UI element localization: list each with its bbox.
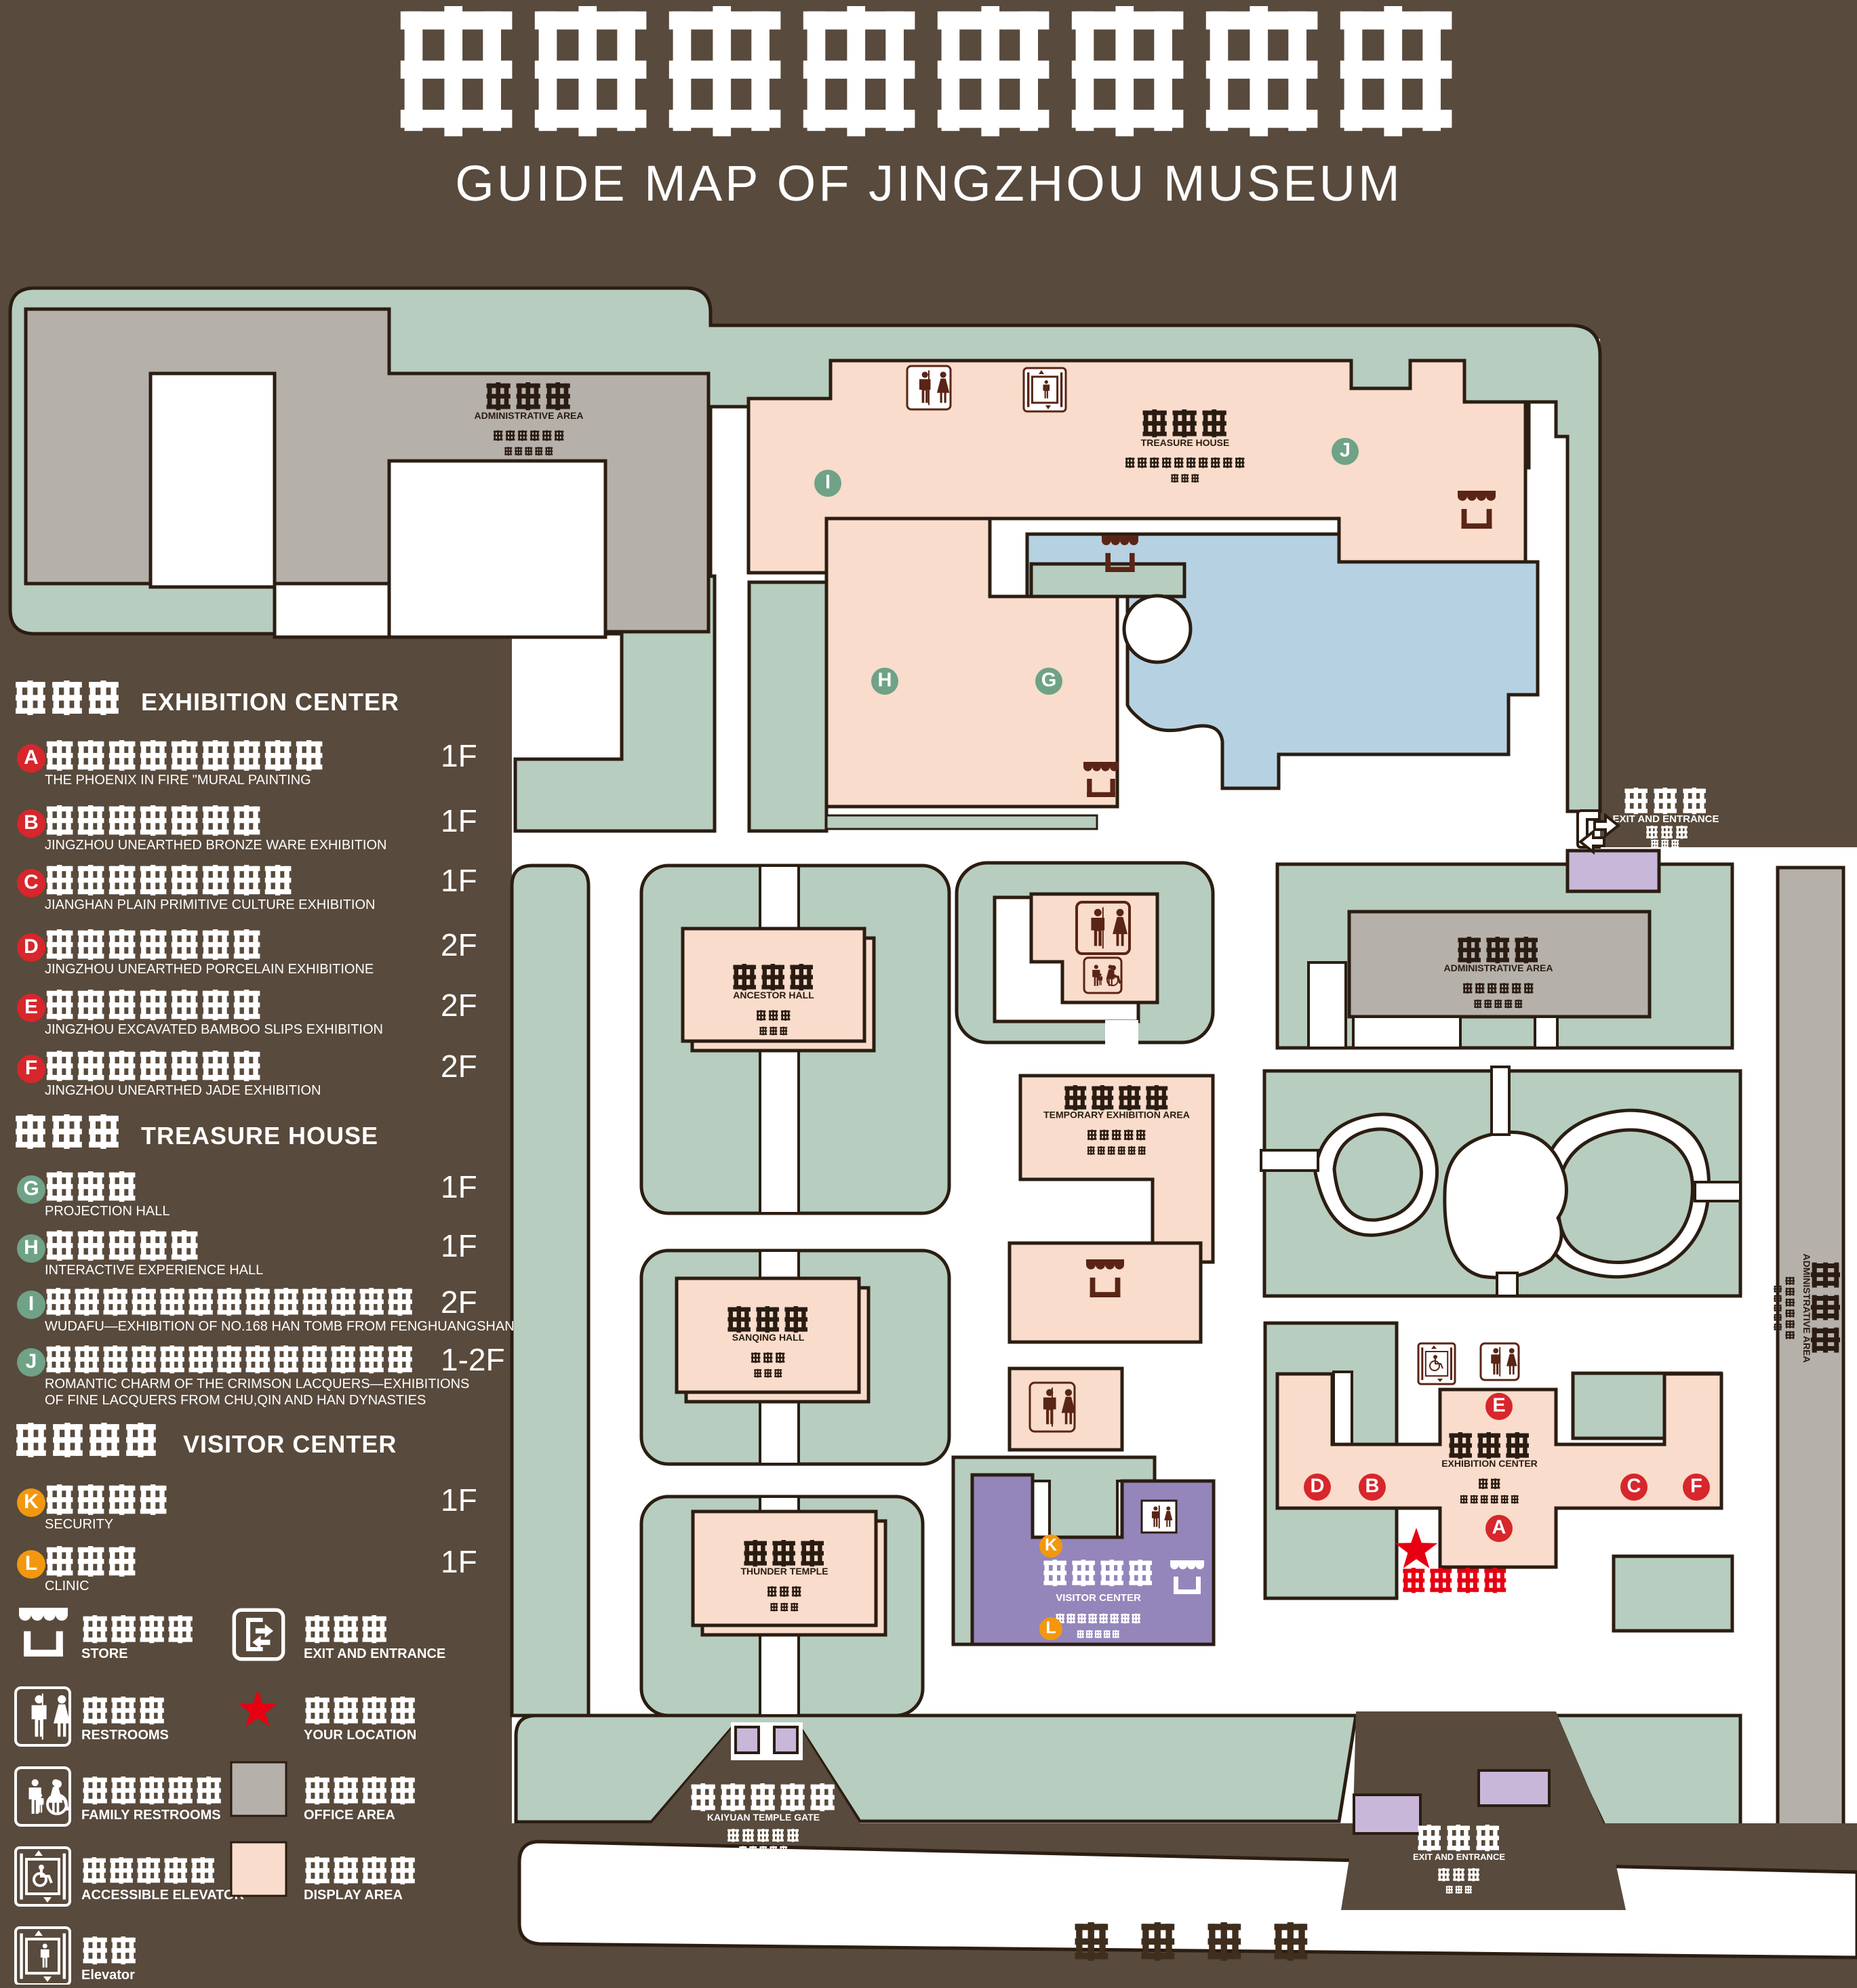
svg-text:JIANGHAN PLAIN PRIMITIVE CULTU: JIANGHAN PLAIN PRIMITIVE CULTURE EXHIBIT… <box>45 897 375 912</box>
svg-text:OFFICE AREA: OFFICE AREA <box>304 1808 395 1823</box>
svg-text:H: H <box>24 1236 39 1259</box>
svg-text:C: C <box>1627 1476 1641 1497</box>
svg-text:ADMINISTRATIVE AREA: ADMINISTRATIVE AREA <box>475 410 584 421</box>
svg-text:SANQING HALL: SANQING HALL <box>732 1332 805 1343</box>
svg-text:B: B <box>24 811 39 834</box>
svg-text:OF FINE LACQUERS FROM CHU,QIN: OF FINE LACQUERS FROM CHU,QIN AND HAN DY… <box>45 1393 426 1408</box>
svg-text:2F: 2F <box>441 1049 477 1084</box>
svg-text:J: J <box>1340 440 1351 462</box>
svg-text:1F: 1F <box>441 1169 477 1204</box>
svg-text:FAMILY RESTROOMS: FAMILY RESTROOMS <box>81 1808 221 1823</box>
svg-text:G: G <box>23 1177 39 1200</box>
svg-text:I: I <box>28 1293 34 1315</box>
svg-text:Elevator: Elevator <box>81 1968 135 1983</box>
svg-text:1F: 1F <box>441 1544 477 1579</box>
svg-text:EXIT AND ENTRANCE: EXIT AND ENTRANCE <box>1613 813 1719 825</box>
svg-text:1-2F: 1-2F <box>441 1342 505 1377</box>
svg-text:B: B <box>1365 1476 1380 1497</box>
svg-text:EXHIBITION CENTER: EXHIBITION CENTER <box>1441 1458 1538 1469</box>
svg-text:VISITOR CENTER: VISITOR CENTER <box>1056 1592 1141 1604</box>
svg-text:F: F <box>1690 1476 1702 1497</box>
svg-text:K: K <box>24 1490 39 1513</box>
svg-text:D: D <box>24 935 39 958</box>
svg-text:THUNDER TEMPLE: THUNDER TEMPLE <box>740 1566 828 1577</box>
svg-text:J: J <box>26 1350 37 1373</box>
svg-text:PROJECTION HALL: PROJECTION HALL <box>45 1204 169 1219</box>
svg-text:1F: 1F <box>441 803 477 838</box>
svg-text:ANCESTOR HALL: ANCESTOR HALL <box>733 990 814 1000</box>
svg-text:TREASURE HOUSE: TREASURE HOUSE <box>141 1122 378 1150</box>
svg-text:STORE: STORE <box>81 1646 128 1661</box>
svg-text:TEMPORARY EXHIBITION AREA: TEMPORARY EXHIBITION AREA <box>1043 1110 1190 1120</box>
svg-text:TREASURE HOUSE: TREASURE HOUSE <box>1141 437 1230 448</box>
svg-text:1F: 1F <box>441 1482 477 1518</box>
svg-text:EXIT AND ENTRANCE: EXIT AND ENTRANCE <box>1413 1852 1505 1862</box>
svg-text:A: A <box>24 746 39 769</box>
svg-text:JINGZHOU UNEARTHED BRONZE WARE: JINGZHOU UNEARTHED BRONZE WARE EXHIBITIO… <box>45 838 386 853</box>
svg-text:WUDAFU—EXHIBITION OF NO.168 HA: WUDAFU—EXHIBITION OF NO.168 HAN TOMB FRO… <box>45 1319 515 1334</box>
svg-text:EXHIBITION CENTER: EXHIBITION CENTER <box>141 688 399 716</box>
svg-text:D: D <box>1311 1476 1325 1497</box>
svg-text:VISITOR CENTER: VISITOR CENTER <box>183 1430 397 1458</box>
svg-text:THE PHOENIX IN FIRE "MURAL PAI: THE PHOENIX IN FIRE "MURAL PAINTING <box>45 773 311 788</box>
svg-text:JINGZHOU UNEARTHED PORCELAIN E: JINGZHOU UNEARTHED PORCELAIN EXHIBITIONE <box>45 962 374 977</box>
svg-text:1F: 1F <box>441 738 477 773</box>
svg-text:ROMANTIC CHARM OF THE CRIMSON: ROMANTIC CHARM OF THE CRIMSON LACQUERS—E… <box>45 1377 469 1392</box>
svg-text:ACCESSIBLE ELEVATOR: ACCESSIBLE ELEVATOR <box>81 1888 245 1903</box>
svg-text:A: A <box>1492 1517 1506 1539</box>
svg-text:H: H <box>878 670 892 691</box>
svg-text:INTERACTIVE EXPERIENCE HALL: INTERACTIVE EXPERIENCE HALL <box>45 1263 263 1278</box>
svg-text:F: F <box>25 1057 37 1079</box>
svg-text:L: L <box>25 1552 37 1575</box>
svg-text:2F: 2F <box>441 927 477 962</box>
svg-text:K: K <box>1045 1535 1057 1554</box>
svg-text:1F: 1F <box>441 863 477 898</box>
svg-text:E: E <box>1492 1395 1505 1417</box>
svg-text:ADMINISTRATIVE AREA: ADMINISTRATIVE AREA <box>1444 962 1553 973</box>
svg-text:2F: 2F <box>441 1284 477 1320</box>
svg-text:I: I <box>825 472 831 493</box>
svg-text:GUIDE MAP OF JINGZHOU MUSEUM: GUIDE MAP OF JINGZHOU MUSEUM <box>455 155 1402 211</box>
svg-text:EXIT AND ENTRANCE: EXIT AND ENTRANCE <box>304 1646 445 1661</box>
svg-text:C: C <box>24 871 39 893</box>
svg-text:L: L <box>1045 1618 1056 1637</box>
svg-text:DISPLAY AREA: DISPLAY AREA <box>304 1888 403 1903</box>
svg-text:SECURITY: SECURITY <box>45 1517 113 1532</box>
svg-text:G: G <box>1041 670 1057 691</box>
svg-text:RESTROOMS: RESTROOMS <box>81 1728 169 1743</box>
svg-text:JINGZHOU EXCAVATED BAMBOO SLIP: JINGZHOU EXCAVATED BAMBOO SLIPS EXHIBITI… <box>45 1022 383 1037</box>
svg-text:JINGZHOU UNEARTHED JADE EXHIBI: JINGZHOU UNEARTHED JADE EXHIBITION <box>45 1083 321 1098</box>
svg-text:E: E <box>24 996 38 1018</box>
svg-text:1F: 1F <box>441 1228 477 1263</box>
svg-text:YOUR LOCATION: YOUR LOCATION <box>304 1728 416 1743</box>
svg-text:ADMINISTRATIVE AREA: ADMINISTRATIVE AREA <box>1801 1254 1812 1363</box>
svg-text:2F: 2F <box>441 988 477 1023</box>
svg-text:CLINIC: CLINIC <box>45 1579 89 1594</box>
svg-text:KAIYUAN TEMPLE GATE: KAIYUAN TEMPLE GATE <box>707 1812 820 1823</box>
